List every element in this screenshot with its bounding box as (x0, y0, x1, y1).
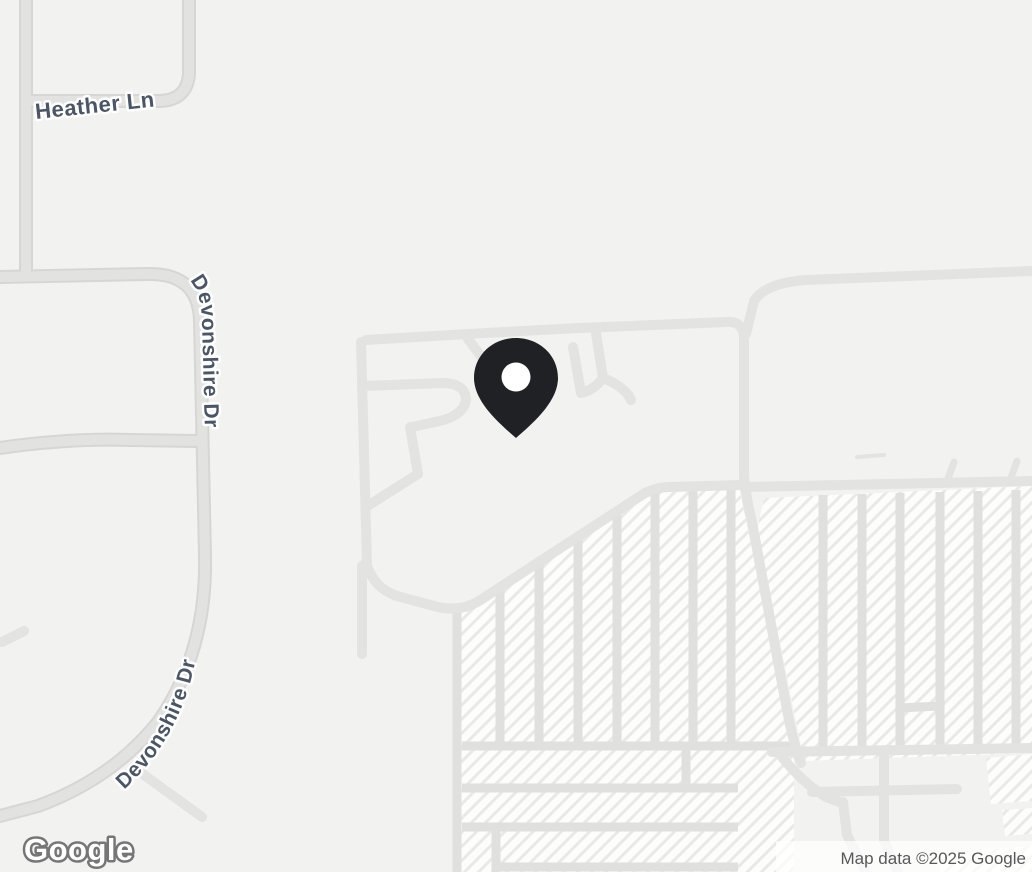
google-logo[interactable]: Google (24, 832, 134, 867)
attribution-text: Map data ©2025 Google (841, 849, 1027, 868)
pin-hole (502, 363, 531, 392)
map-attribution: Map data ©2025 Google (776, 841, 1032, 872)
map-canvas[interactable]: Heather Ln Devonshire Dr Devonshire Dr G… (0, 0, 1032, 872)
map-svg[interactable]: Heather Ln Devonshire Dr Devonshire Dr G… (0, 0, 1032, 872)
